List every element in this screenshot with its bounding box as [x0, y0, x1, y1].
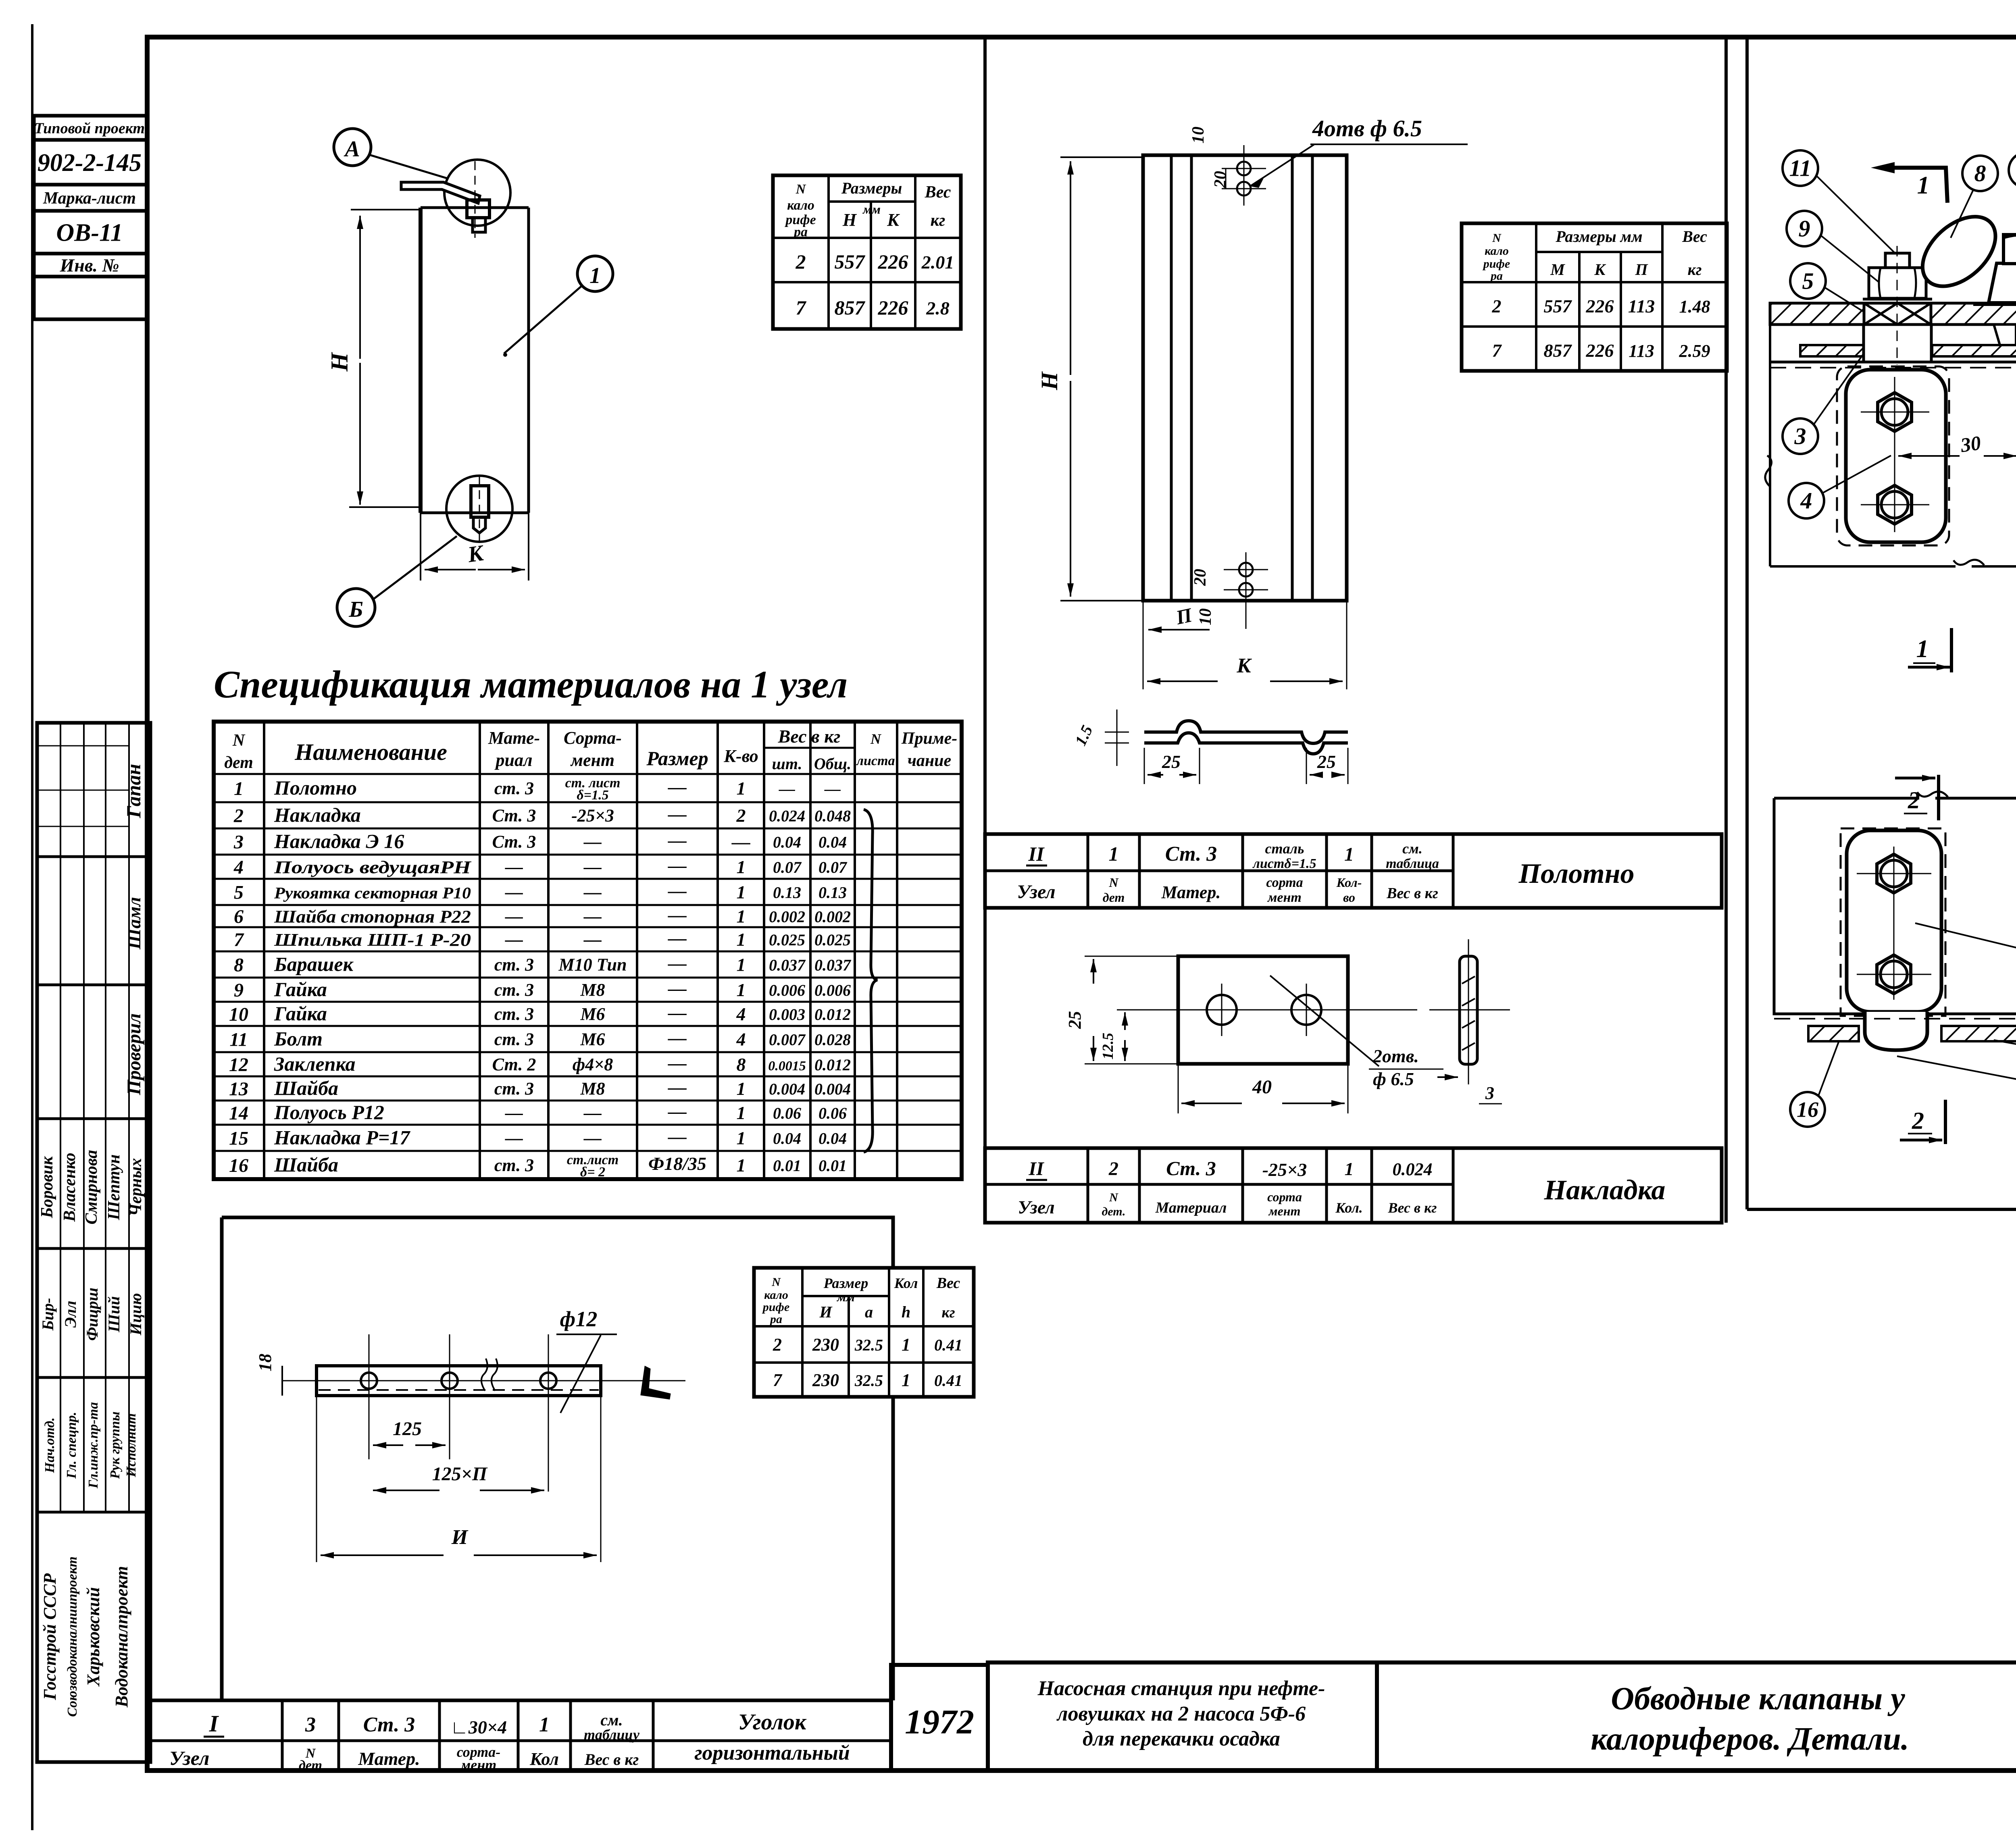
svg-text:-25×3: -25×3 [1262, 1159, 1307, 1180]
svg-text:1: 1 [737, 929, 746, 950]
svg-text:125×П: 125×П [432, 1463, 488, 1485]
svg-text:К-во: К-во [723, 746, 758, 766]
svg-text:32.5: 32.5 [854, 1371, 883, 1390]
svg-text:2.59: 2.59 [1679, 341, 1710, 361]
svg-text:рифе: рифе [762, 1300, 789, 1314]
svg-text:5: 5 [1802, 268, 1814, 294]
svg-text:3: 3 [233, 832, 244, 853]
svg-text:ОВ-11: ОВ-11 [56, 219, 123, 247]
svg-text:N: N [232, 731, 246, 750]
svg-text:Элл: Элл [61, 1301, 79, 1328]
svg-text:Бир-: Бир- [39, 1298, 57, 1331]
svg-text:рифе: рифе [1482, 257, 1510, 270]
svg-text:3: 3 [1485, 1083, 1494, 1103]
svg-text:-25×3: -25×3 [571, 806, 614, 826]
svg-text:ст. 3: ст. 3 [494, 1079, 534, 1099]
svg-text:—: — [668, 905, 687, 925]
svg-text:—: — [668, 1101, 687, 1121]
svg-text:М6: М6 [580, 1004, 605, 1024]
svg-text:Гл.инж.пр-та: Гл.инж.пр-та [86, 1402, 101, 1489]
svg-text:2: 2 [736, 805, 746, 826]
svg-text:ст. 3: ст. 3 [494, 980, 534, 1000]
svg-text:Насосная станция при нефте-: Насосная станция при нефте- [1037, 1677, 1325, 1700]
svg-text:N: N [1108, 875, 1119, 890]
svg-text:ф4×8: ф4×8 [573, 1055, 613, 1074]
svg-text:0.07: 0.07 [773, 858, 802, 876]
svg-text:Ст. 3: Ст. 3 [492, 832, 536, 852]
svg-text:12.5: 12.5 [1100, 1033, 1116, 1060]
svg-text:Нач.отд.: Нач.отд. [42, 1417, 57, 1473]
svg-text:—: — [505, 930, 523, 949]
svg-text:дет: дет [1103, 890, 1125, 905]
svg-text:Ицию: Ицию [127, 1293, 145, 1336]
svg-text:—: — [505, 907, 523, 926]
svg-text:13: 13 [229, 1078, 248, 1100]
svg-text:Размеры: Размеры [841, 179, 902, 197]
svg-text:18: 18 [255, 1354, 275, 1371]
svg-text:Ф18/35: Ф18/35 [648, 1153, 706, 1174]
svg-text:Полотно: Полотно [274, 776, 357, 799]
svg-text:Кол-: Кол- [1336, 875, 1362, 890]
svg-text:Узел: Узел [169, 1747, 209, 1769]
svg-text:0.04: 0.04 [773, 833, 801, 851]
svg-text:3: 3 [305, 1713, 316, 1736]
svg-text:мент: мент [1268, 1204, 1301, 1218]
svg-text:Госстрой СССР: Госстрой СССР [40, 1573, 60, 1700]
svg-text:Размер: Размер [823, 1275, 868, 1291]
svg-text:II: II [1028, 1158, 1045, 1180]
svg-text:230: 230 [812, 1335, 839, 1354]
svg-text:—: — [583, 882, 602, 902]
svg-text:1: 1 [737, 1078, 746, 1099]
svg-text:—: — [668, 855, 687, 876]
svg-text:ра: ра [793, 225, 808, 239]
svg-text:Приме-: Приме- [901, 729, 957, 748]
svg-text:0.002: 0.002 [814, 908, 851, 926]
svg-text:2: 2 [233, 805, 244, 827]
svg-text:Проверил: Проверил [123, 1013, 145, 1096]
svg-text:риал: риал [494, 750, 532, 770]
svg-text:I: I [209, 1710, 219, 1737]
svg-text:1: 1 [737, 980, 746, 1000]
svg-text:9: 9 [1799, 216, 1810, 242]
svg-text:Барашек: Барашек [274, 953, 354, 976]
svg-text:1: 1 [737, 882, 746, 903]
svg-text:δ=1.5: δ=1.5 [577, 788, 608, 803]
svg-text:1: 1 [737, 857, 746, 877]
svg-text:Вес в кг: Вес в кг [778, 726, 841, 747]
svg-text:30: 30 [1959, 431, 1982, 457]
svg-text:ст. 3: ст. 3 [494, 955, 534, 975]
svg-text:Ст. 3: Ст. 3 [492, 806, 536, 826]
svg-text:Ший: Ший [105, 1296, 123, 1333]
svg-text:—: — [505, 857, 523, 877]
svg-text:Накладка Э 16: Накладка Э 16 [274, 830, 404, 853]
svg-text:К: К [1594, 260, 1606, 279]
svg-text:дет.: дет. [1102, 1205, 1125, 1218]
svg-text:4: 4 [1800, 488, 1812, 514]
svg-text:мм: мм [862, 202, 881, 216]
svg-text:Мате-: Мате- [488, 728, 540, 748]
svg-text:во: во [1343, 890, 1355, 905]
svg-text:Харьковский: Харьковский [83, 1587, 103, 1687]
svg-text:1: 1 [737, 1155, 746, 1176]
svg-text:0.04: 0.04 [773, 1130, 801, 1148]
svg-text:7: 7 [773, 1370, 783, 1390]
svg-text:16: 16 [229, 1155, 248, 1176]
svg-text:0.13: 0.13 [818, 884, 847, 902]
svg-text:Смирнова: Смирнова [82, 1150, 101, 1225]
svg-text:0.012: 0.012 [814, 1056, 851, 1074]
svg-text:Шайба стопорная Р22: Шайба стопорная Р22 [274, 907, 471, 927]
svg-text:Болт: Болт [274, 1028, 323, 1050]
svg-text:902-2-145: 902-2-145 [37, 149, 142, 177]
svg-text:Накладка Р=17: Накладка Р=17 [274, 1126, 410, 1149]
svg-text:2: 2 [1492, 296, 1502, 316]
svg-text:Полуось ведущаяРН: Полуось ведущаяРН [274, 857, 472, 877]
svg-text:7: 7 [1492, 340, 1502, 361]
svg-text:кг: кг [931, 211, 946, 230]
svg-text:∟30×4: ∟30×4 [450, 1717, 507, 1737]
svg-text:Б: Б [348, 597, 363, 622]
svg-text:Кол.: Кол. [1335, 1200, 1363, 1216]
svg-text:ф 6.5: ф 6.5 [1373, 1069, 1414, 1089]
svg-text:1: 1 [737, 1103, 746, 1123]
svg-text:0.048: 0.048 [814, 807, 851, 825]
svg-text:М8: М8 [580, 980, 605, 1000]
svg-text:М8: М8 [580, 1079, 605, 1099]
svg-text:2.8: 2.8 [926, 298, 950, 318]
svg-text:16: 16 [1797, 1097, 1818, 1121]
svg-text:0.007: 0.007 [769, 1031, 806, 1049]
svg-text:—: — [668, 1002, 687, 1023]
svg-text:0.04: 0.04 [818, 833, 847, 851]
svg-text:—: — [668, 804, 687, 824]
svg-text:Матер.: Матер. [358, 1748, 420, 1769]
svg-text:15: 15 [229, 1128, 248, 1149]
svg-text:0.002: 0.002 [769, 908, 805, 926]
svg-text:0.024: 0.024 [769, 807, 805, 825]
svg-text:5: 5 [234, 882, 244, 903]
svg-text:—: — [505, 1128, 523, 1148]
svg-text:Узел: Узел [1018, 1197, 1054, 1217]
svg-text:557: 557 [1544, 296, 1572, 316]
svg-text:Шайба: Шайба [274, 1153, 338, 1176]
svg-text:1: 1 [234, 778, 244, 799]
svg-text:2: 2 [1108, 1158, 1118, 1180]
svg-text:2: 2 [1908, 787, 1920, 814]
svg-text:—: — [583, 1103, 602, 1123]
svg-text:4: 4 [736, 1029, 746, 1050]
svg-text:0.006: 0.006 [769, 981, 805, 999]
svg-text:226: 226 [1586, 340, 1614, 361]
svg-text:М: М [1550, 260, 1565, 279]
svg-text:2: 2 [773, 1335, 782, 1354]
svg-text:—: — [668, 830, 687, 851]
svg-text:10: 10 [229, 1004, 248, 1025]
svg-text:Вес в кг: Вес в кг [1386, 885, 1438, 902]
svg-text:—: — [583, 832, 602, 852]
svg-text:а: а [865, 1303, 873, 1321]
svg-text:Наименование: Наименование [294, 739, 447, 765]
svg-text:II: II [1028, 843, 1045, 865]
svg-text:Шпилька ШП-1 Р-20: Шпилька ШП-1 Р-20 [274, 930, 471, 950]
svg-text:мм: мм [836, 1290, 855, 1304]
svg-text:0.037: 0.037 [814, 956, 852, 974]
svg-text:сорта: сорта [1266, 875, 1303, 890]
svg-text:мент: мент [460, 1757, 497, 1773]
svg-text:Вес: Вес [925, 183, 951, 202]
svg-text:14: 14 [229, 1103, 248, 1124]
svg-text:8: 8 [1974, 160, 1986, 187]
svg-text:20: 20 [1211, 171, 1230, 188]
svg-text:0.037: 0.037 [769, 956, 806, 974]
svg-text:11: 11 [1789, 155, 1812, 181]
svg-text:Типовой проект: Типовой проект [34, 120, 145, 137]
svg-text:Вес в кг: Вес в кг [1387, 1200, 1437, 1216]
svg-text:—: — [668, 880, 687, 901]
svg-text:ст. 3: ст. 3 [494, 1004, 534, 1024]
svg-text:—: — [668, 978, 687, 999]
svg-text:ст. 3: ст. 3 [494, 778, 534, 798]
svg-text:226: 226 [878, 296, 908, 319]
svg-text:857: 857 [835, 296, 866, 319]
svg-text:Шайба: Шайба [274, 1077, 338, 1099]
svg-text:Ст. 3: Ст. 3 [1165, 843, 1217, 866]
svg-text:9: 9 [234, 980, 244, 1001]
svg-text:1: 1 [539, 1713, 550, 1736]
svg-text:Рукоятка секторная Р10: Рукоятка секторная Р10 [274, 884, 471, 902]
svg-text:И: И [819, 1303, 833, 1321]
svg-text:—: — [779, 780, 795, 798]
svg-text:Кол: Кол [894, 1275, 918, 1291]
svg-text:кало: кало [764, 1288, 788, 1302]
svg-text:ст. 3: ст. 3 [494, 1030, 534, 1049]
svg-text:И: И [451, 1526, 469, 1549]
svg-text:—: — [668, 1028, 687, 1048]
svg-text:10: 10 [1189, 127, 1208, 144]
svg-text:—: — [583, 1128, 602, 1148]
svg-text:0.06: 0.06 [773, 1104, 801, 1122]
svg-text:Рук группы: Рук группы [108, 1411, 123, 1479]
svg-text:1: 1 [737, 906, 746, 927]
svg-text:Накладка: Накладка [1544, 1175, 1666, 1206]
svg-text:Уголок: Уголок [738, 1710, 807, 1735]
svg-text:—: — [824, 780, 841, 798]
svg-text:Н: Н [842, 210, 857, 230]
svg-text:4отв ф 6.5: 4отв ф 6.5 [1312, 115, 1422, 141]
svg-text:1: 1 [1917, 172, 1930, 199]
svg-text:—: — [731, 832, 750, 852]
svg-text:ра: ра [769, 1313, 782, 1326]
svg-text:таблица: таблица [1386, 856, 1439, 871]
svg-text:1: 1 [1916, 635, 1929, 663]
svg-text:Шамл: Шамл [124, 897, 144, 950]
svg-text:кало: кало [1485, 244, 1509, 258]
svg-text:12: 12 [229, 1054, 248, 1076]
svg-text:Узел: Узел [1017, 881, 1055, 903]
svg-text:N: N [771, 1275, 781, 1289]
svg-text:Боровик: Боровик [38, 1156, 56, 1219]
svg-text:0.025: 0.025 [814, 931, 851, 949]
svg-text:2: 2 [1912, 1107, 1924, 1134]
svg-text:0.41: 0.41 [934, 1336, 962, 1354]
svg-text:Союзводоканалниипроект: Союзводоканалниипроект [65, 1556, 80, 1717]
svg-text:113: 113 [1629, 341, 1654, 361]
svg-text:1.48: 1.48 [1679, 297, 1710, 316]
svg-text:Вес: Вес [1682, 227, 1707, 246]
svg-text:Полуось Р12: Полуось Р12 [274, 1101, 384, 1124]
svg-text:шт.: шт. [772, 755, 802, 773]
svg-text:Накладка: Накладка [274, 804, 361, 826]
svg-text:0.13: 0.13 [773, 884, 801, 902]
svg-text:—: — [668, 1053, 687, 1073]
svg-text:0.006: 0.006 [814, 981, 851, 999]
svg-text:557: 557 [835, 250, 866, 273]
svg-text:3: 3 [1794, 423, 1806, 449]
svg-text:—: — [505, 1103, 523, 1123]
svg-text:Ст. 3: Ст. 3 [363, 1713, 415, 1736]
svg-text:Размеры мм: Размеры мм [1555, 227, 1642, 246]
svg-text:—: — [668, 1077, 687, 1097]
svg-text:см.: см. [1402, 841, 1422, 857]
svg-text:Сорта-: Сорта- [564, 728, 622, 748]
svg-text:7: 7 [234, 929, 244, 951]
svg-text:Н: Н [1036, 371, 1062, 391]
svg-text:Гл. спецпр.: Гл. спецпр. [64, 1412, 79, 1479]
svg-text:листδ=1.5: листδ=1.5 [1252, 856, 1316, 871]
svg-text:0.07: 0.07 [818, 858, 848, 876]
svg-text:226: 226 [878, 250, 908, 273]
svg-text:—: — [668, 1126, 687, 1147]
svg-text:0.004: 0.004 [769, 1080, 805, 1098]
svg-text:0.012: 0.012 [814, 1005, 851, 1024]
svg-text:8: 8 [737, 1054, 746, 1075]
svg-text:—: — [583, 907, 602, 926]
svg-text:1: 1 [1109, 843, 1119, 865]
svg-text:230: 230 [812, 1370, 839, 1390]
svg-text:Материал: Материал [1155, 1199, 1227, 1216]
svg-text:—: — [668, 776, 687, 797]
svg-text:Заклепка: Заклепка [274, 1053, 356, 1075]
svg-text:Спецификация материалов на 1: Спецификация материалов на 1 узел [214, 663, 848, 706]
svg-text:11: 11 [229, 1029, 248, 1051]
svg-text:1: 1 [737, 778, 746, 799]
svg-text:калориферов. Детали.: калориферов. Детали. [1591, 1721, 1909, 1757]
svg-text:М10 Тип: М10 Тип [558, 955, 627, 975]
svg-text:20: 20 [1191, 569, 1210, 586]
svg-text:1: 1 [902, 1335, 910, 1354]
svg-text:К: К [887, 210, 900, 230]
svg-text:113: 113 [1628, 296, 1655, 316]
svg-text:2.01: 2.01 [921, 252, 954, 273]
svg-text:Полотно: Полотно [1518, 858, 1635, 889]
svg-text:Гапан: Гапан [122, 764, 145, 819]
svg-text:Вес: Вес [936, 1275, 960, 1292]
svg-text:0.025: 0.025 [769, 931, 805, 949]
svg-text:δ= 2: δ= 2 [580, 1165, 605, 1180]
svg-text:857: 857 [1544, 340, 1572, 361]
svg-text:0.01: 0.01 [818, 1157, 847, 1175]
svg-text:П: П [1635, 260, 1648, 279]
svg-text:25: 25 [1317, 751, 1336, 772]
svg-text:32.5: 32.5 [854, 1336, 883, 1354]
svg-text:N: N [1492, 231, 1502, 245]
svg-text:4: 4 [233, 857, 244, 878]
svg-text:125: 125 [393, 1418, 422, 1440]
svg-text:ловушках на 2 насоса 5Ф-6: ловушках на 2 насоса 5Ф-6 [1056, 1702, 1306, 1725]
svg-text:Обводные клапаны у: Обводные клапаны у [1611, 1681, 1905, 1716]
svg-text:мент: мент [570, 750, 614, 770]
svg-text:Исполнит: Исполнит [124, 1413, 139, 1477]
svg-text:кг: кг [1687, 260, 1702, 279]
svg-text:Черных: Черных [127, 1158, 145, 1217]
svg-text:мент: мент [1267, 890, 1302, 905]
svg-text:—: — [505, 882, 523, 902]
svg-text:Водоканалпроект: Водоканалпроект [112, 1566, 131, 1708]
svg-text:горизонтальный: горизонтальный [694, 1741, 850, 1764]
svg-text:8: 8 [234, 955, 244, 976]
svg-text:—: — [668, 953, 687, 974]
svg-text:4: 4 [736, 1004, 746, 1024]
svg-text:—: — [583, 930, 602, 949]
svg-text:25: 25 [1162, 751, 1181, 772]
svg-text:Шептун: Шептун [105, 1155, 123, 1221]
svg-text:кало: кало [787, 198, 814, 213]
svg-text:чание: чание [908, 751, 951, 770]
svg-text:сорта: сорта [1267, 1190, 1302, 1204]
svg-text:0.003: 0.003 [769, 1005, 805, 1024]
svg-text:—: — [583, 857, 602, 877]
svg-text:0.004: 0.004 [814, 1080, 851, 1098]
svg-text:Фицрш: Фицрш [83, 1288, 101, 1341]
svg-text:кг: кг [941, 1304, 955, 1321]
svg-text:Размер: Размер [646, 747, 708, 770]
svg-text:Вес в кг: Вес в кг [584, 1750, 639, 1769]
svg-text:Общ.: Общ. [814, 755, 851, 773]
svg-text:2: 2 [796, 250, 806, 273]
svg-text:N: N [870, 731, 882, 747]
svg-text:Кол: Кол [529, 1749, 559, 1769]
svg-text:h: h [902, 1303, 910, 1321]
svg-text:таблицу: таблицу [584, 1727, 640, 1743]
svg-text:0.41: 0.41 [934, 1371, 962, 1390]
svg-text:Матер.: Матер. [1161, 882, 1221, 902]
svg-text:7: 7 [796, 296, 807, 319]
svg-text:N: N [1109, 1191, 1118, 1204]
svg-text:1: 1 [737, 1128, 746, 1148]
svg-text:Ст. 2: Ст. 2 [492, 1055, 536, 1074]
svg-text:0.028: 0.028 [814, 1031, 851, 1049]
svg-text:1: 1 [589, 263, 601, 288]
svg-text:Власенко: Власенко [60, 1153, 79, 1222]
svg-text:25: 25 [1065, 1011, 1085, 1029]
svg-text:ф12: ф12 [560, 1307, 598, 1331]
svg-text:0.06: 0.06 [818, 1104, 847, 1122]
svg-text:N: N [796, 182, 806, 197]
svg-text:ст. 3: ст. 3 [494, 1155, 534, 1175]
svg-text:—: — [668, 928, 687, 948]
svg-text:Ст. 3: Ст. 3 [1166, 1157, 1216, 1180]
svg-text:ра: ра [1489, 269, 1503, 283]
svg-text:М6: М6 [580, 1030, 605, 1049]
svg-text:1: 1 [1345, 1159, 1354, 1179]
svg-text:0.024: 0.024 [1393, 1159, 1433, 1179]
svg-text:дет: дет [299, 1758, 322, 1773]
svg-text:сталь: сталь [1265, 841, 1304, 857]
svg-text:1: 1 [902, 1370, 910, 1390]
svg-text:Гайка: Гайка [274, 978, 327, 1001]
